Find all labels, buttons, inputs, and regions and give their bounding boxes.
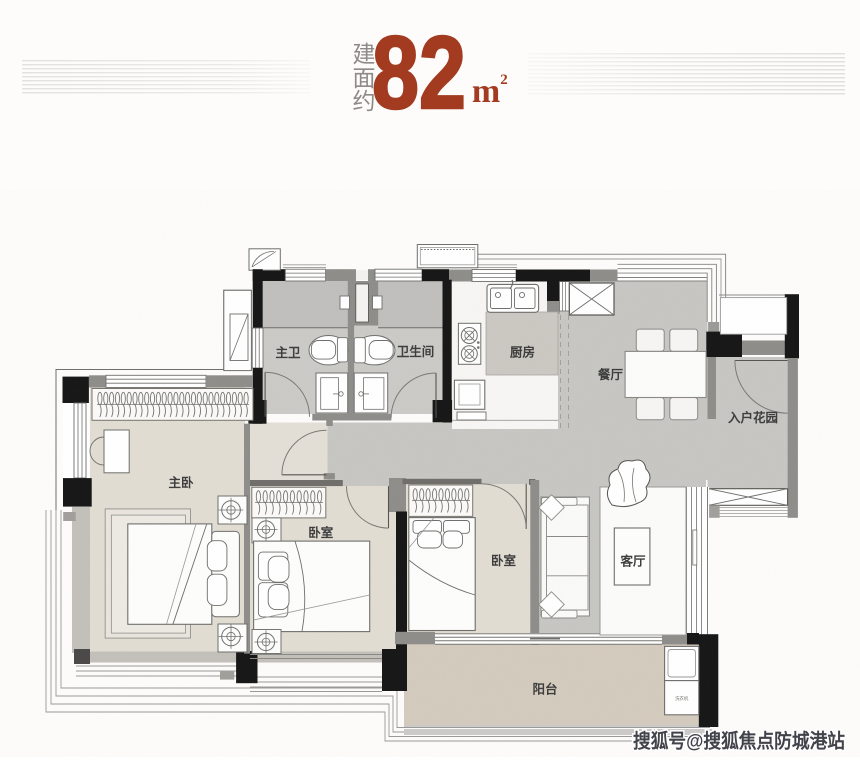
svg-text:82: 82	[372, 15, 466, 130]
svg-text:2: 2	[500, 72, 508, 88]
svg-text:m: m	[472, 73, 500, 110]
